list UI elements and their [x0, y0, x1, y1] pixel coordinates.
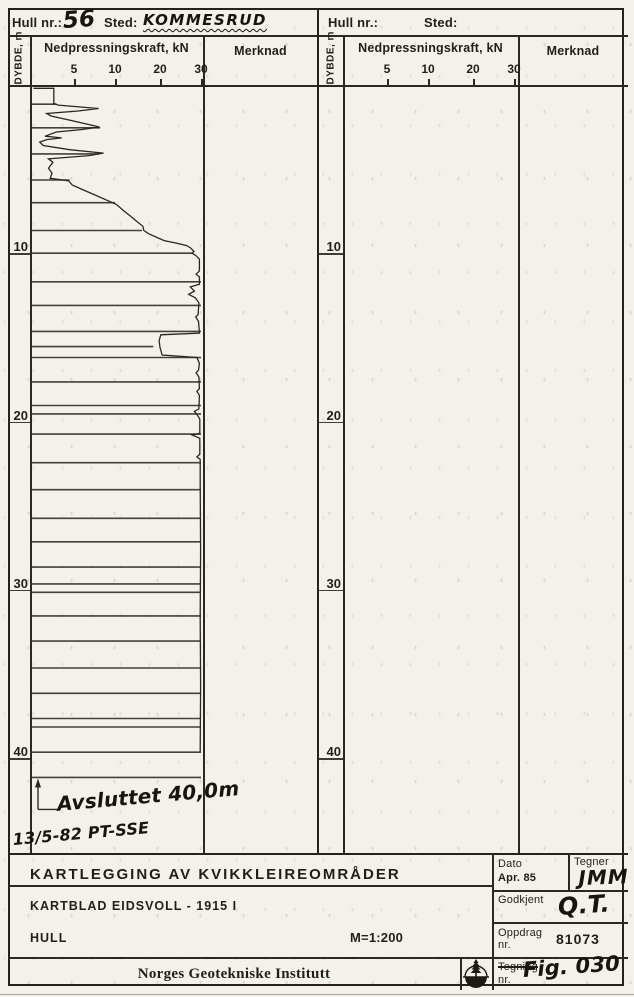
- force-tick-mark: [428, 79, 430, 85]
- project-no-value: 81073: [556, 931, 600, 947]
- map-sheet-title: KARTBLAD EIDSVOLL - 1915 I: [30, 899, 237, 913]
- depth-mark-line: [8, 590, 30, 591]
- force-tick-label: 5: [61, 62, 87, 76]
- depth-mark-line: [318, 253, 343, 254]
- force-tick-mark: [387, 79, 389, 85]
- ngi-tree-logo-icon: [462, 958, 490, 989]
- force-tick-label: 10: [415, 62, 441, 76]
- approved-initials-handwritten: Q.T.: [557, 889, 611, 921]
- force-tick-label: 5: [374, 62, 400, 76]
- project-title: KARTLEGGING AV KVIKKLEIREOMRÅDER: [30, 866, 401, 883]
- force-depth-chart: [30, 85, 203, 853]
- scanned-sounding-log-sheet: Hull nr.: 56 Sted: KOMMESRUD DYBDE, m Ne…: [0, 0, 634, 997]
- depth-mark-line: [318, 422, 343, 423]
- depth-mark-line: [318, 758, 343, 759]
- force-tick-label: 10: [102, 62, 128, 76]
- termination-arrow-head: [35, 778, 41, 787]
- depth-mark-line: [318, 590, 343, 591]
- date-value: Apr. 85: [498, 872, 536, 884]
- force-tick-label: 30: [188, 62, 214, 76]
- project-no-label: Oppdrag: [498, 927, 542, 939]
- force-tick-mark: [514, 79, 516, 85]
- approved-label: Godkjent: [498, 894, 544, 906]
- depth-mark-line: [8, 253, 30, 254]
- force-tick-mark: [473, 79, 475, 85]
- scale-value: M=1:200: [350, 930, 403, 945]
- force-tick-label: 20: [147, 62, 173, 76]
- force-depth-curve: [34, 88, 201, 752]
- project-no-label2: nr.: [498, 939, 511, 951]
- drafter-initials-handwritten: JMM: [578, 864, 629, 890]
- force-tick-label: 30: [501, 62, 527, 76]
- depth-mark-line: [8, 758, 30, 759]
- force-tick-label: 20: [460, 62, 486, 76]
- depth-mark-line: [8, 422, 30, 423]
- hole-label: HULL: [30, 931, 67, 945]
- institute-name: Norges Geotekniske Institutt: [8, 966, 460, 983]
- date-label: Dato: [498, 858, 522, 870]
- drawing-no-label2: nr.: [498, 974, 511, 986]
